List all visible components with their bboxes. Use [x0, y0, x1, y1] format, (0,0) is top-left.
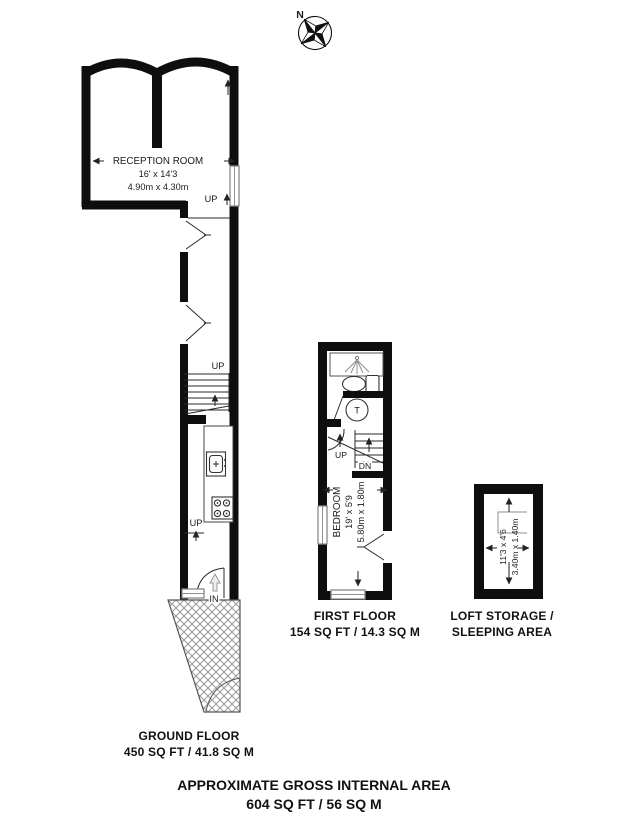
- first-floor-caption: FIRST FLOOR 154 SQ FT / 14.3 SQ M: [285, 609, 425, 640]
- first-floor-plan: T UP DN BEDROOM 19' x 5'9 5.80m x 1.80m: [318, 342, 392, 600]
- first-floor-caption-line1: FIRST FLOOR: [285, 609, 425, 625]
- loft-size-imperial: 11'3 x 4'6: [498, 529, 508, 565]
- north-label: N: [296, 9, 304, 21]
- reception-room-size-imperial: 16' x 14'3: [139, 169, 178, 179]
- reception-window: [230, 166, 239, 206]
- dn-label-first-floor: DN: [359, 461, 371, 471]
- loft-caption-line1: LOFT STORAGE /: [427, 609, 577, 625]
- bedroom-window-bottom: [331, 590, 365, 599]
- loft-caption-line2: SLEEPING AREA: [427, 625, 577, 641]
- gross-internal-area-title: APPROXIMATE GROSS INTERNAL AREA 604 SQ F…: [0, 776, 628, 814]
- loft-caption: LOFT STORAGE / SLEEPING AREA: [427, 609, 577, 640]
- ground-floor-caption: GROUND FLOOR 450 SQ FT / 41.8 SQ M: [109, 729, 269, 760]
- corridor-door-symbol-2: [186, 305, 211, 341]
- in-label: IN: [209, 594, 218, 604]
- bedroom-size-metric: 5.80m x 1.80m: [356, 481, 366, 542]
- ground-floor-caption-line2: 450 SQ FT / 41.8 SQ M: [109, 745, 269, 761]
- up-label-reception: UP: [205, 194, 218, 204]
- footer-line1: APPROXIMATE GROSS INTERNAL AREA: [0, 776, 628, 795]
- kitchen-counter: [204, 426, 233, 522]
- loft-plan: 11'3 x 4'6 3.40m x 1.40m: [474, 484, 543, 599]
- first-floor-caption-line2: 154 SQ FT / 14.3 SQ M: [285, 625, 425, 641]
- footer-line2: 604 SQ FT / 56 SQ M: [0, 795, 628, 814]
- up-label-mid: UP: [212, 361, 225, 371]
- hatched-patio: [168, 600, 240, 712]
- bedroom-name: BEDROOM: [332, 487, 343, 538]
- toilet-icon: [343, 376, 380, 393]
- loft-size-metric: 3.40m x 1.40m: [510, 519, 520, 576]
- up-label-entry: UP: [190, 518, 203, 528]
- corridor-door-symbol-1: [186, 221, 211, 249]
- up-label-first-floor: UP: [335, 450, 347, 460]
- floorplan-page: N: [0, 0, 628, 821]
- floorplan-drawing: N: [0, 0, 628, 821]
- ground-floor-plan: RECEPTION ROOM 16' x 14'3 4.90m x 4.30m …: [82, 62, 240, 712]
- bedroom-window-left: [318, 506, 327, 544]
- entry-arrow-icon: [210, 574, 220, 591]
- front-step-window: [182, 589, 204, 598]
- shower-icon: [330, 353, 383, 376]
- bedroom-size-imperial: 19' x 5'9: [344, 495, 354, 529]
- reception-room-name: RECEPTION ROOM: [113, 156, 203, 167]
- reception-room-label: RECEPTION ROOM 16' x 14'3 4.90m x 4.30m: [113, 156, 203, 192]
- ground-floor-caption-line1: GROUND FLOOR: [109, 729, 269, 745]
- hob-icon: [212, 497, 233, 519]
- compass-icon: N: [290, 8, 339, 57]
- bathroom-stub-wall: [343, 391, 383, 398]
- sink-icon: [207, 452, 227, 476]
- reception-room-size-metric: 4.90m x 4.30m: [128, 182, 189, 192]
- landing-stub-wall: [327, 419, 341, 427]
- tank-label: T: [354, 406, 360, 416]
